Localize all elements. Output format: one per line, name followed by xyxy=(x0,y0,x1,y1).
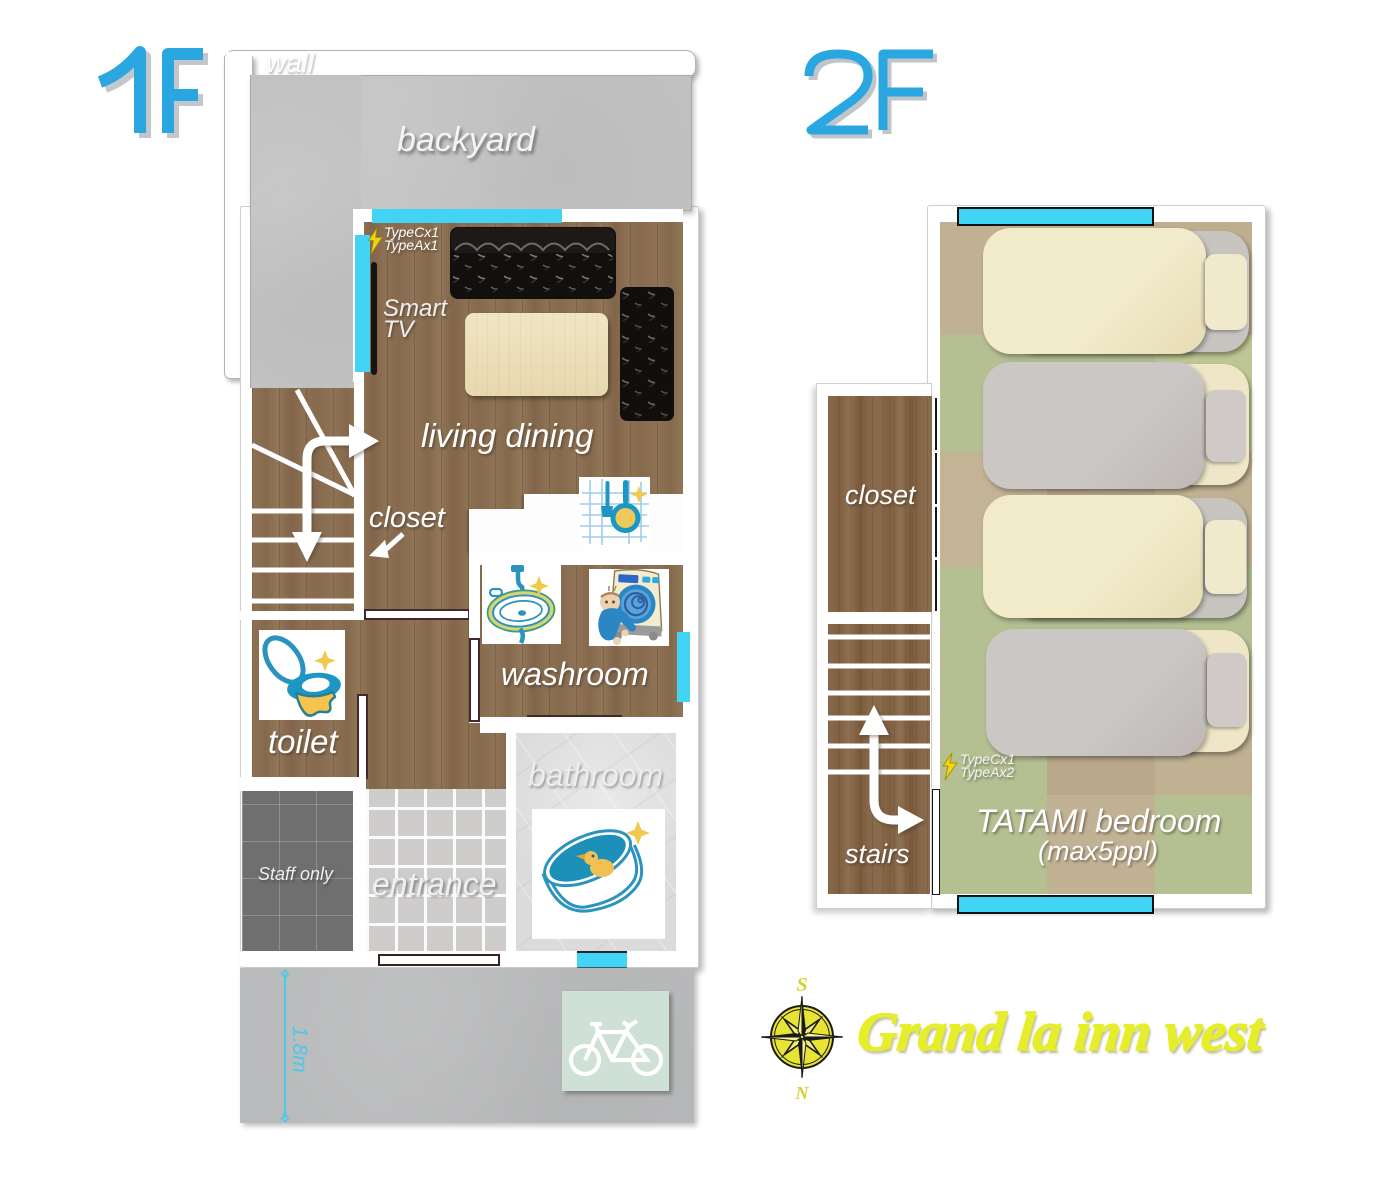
svg-text:N: N xyxy=(795,1083,810,1100)
svg-text:S: S xyxy=(796,975,807,996)
